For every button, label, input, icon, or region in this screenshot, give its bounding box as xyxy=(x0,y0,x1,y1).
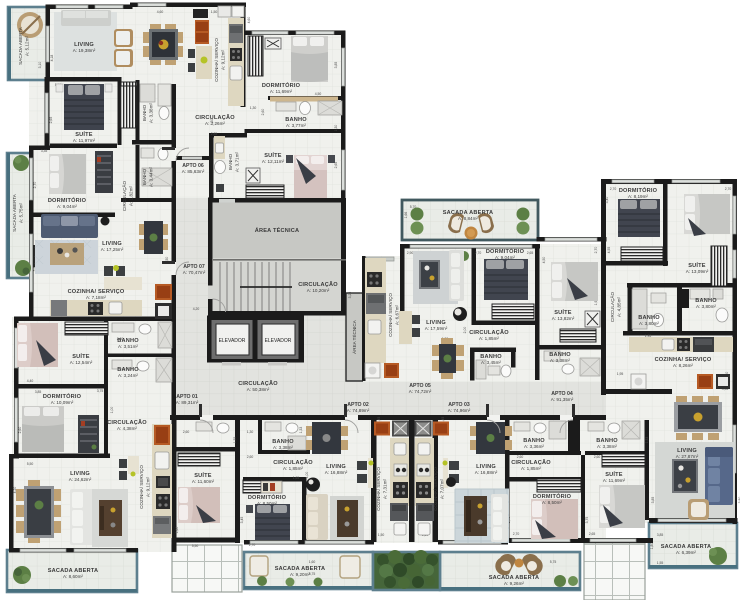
svg-text:SUÍTE: SUÍTE xyxy=(554,308,572,316)
svg-text:A: 8,26m²: A: 8,26m² xyxy=(673,363,693,368)
svg-text:A: 74,96m²: A: 74,96m² xyxy=(448,408,471,413)
svg-text:1,80: 1,80 xyxy=(650,543,654,550)
svg-text:COZINHA/ SERVIÇO: COZINHA/ SERVIÇO xyxy=(139,465,144,509)
svg-text:2,70: 2,70 xyxy=(513,532,520,536)
svg-text:A: 9,20m²: A: 9,20m² xyxy=(290,572,310,577)
svg-text:A: 11,69m²: A: 11,69m² xyxy=(270,89,293,94)
svg-text:2,65: 2,65 xyxy=(527,251,534,255)
svg-text:2,70: 2,70 xyxy=(33,182,37,189)
svg-text:A: 16,88m²: A: 16,88m² xyxy=(325,470,348,475)
svg-text:DORMITÓRIO: DORMITÓRIO xyxy=(43,392,82,400)
svg-text:1,65: 1,65 xyxy=(293,476,300,480)
svg-text:DORMITÓRIO: DORMITÓRIO xyxy=(533,492,572,500)
svg-text:A: 10,20m²: A: 10,20m² xyxy=(307,288,330,293)
svg-text:3,75: 3,75 xyxy=(97,389,104,393)
svg-text:4,40: 4,40 xyxy=(27,379,34,383)
svg-text:A: 16,88m²: A: 16,88m² xyxy=(475,470,498,475)
svg-text:COZINHA/ SERVIÇO: COZINHA/ SERVIÇO xyxy=(376,467,381,511)
svg-text:A: 24,62m²: A: 24,62m² xyxy=(69,477,92,482)
svg-text:3,35: 3,35 xyxy=(41,149,48,153)
svg-text:2,70: 2,70 xyxy=(725,187,732,191)
svg-text:SUÍTE: SUÍTE xyxy=(194,471,212,479)
svg-text:3,85: 3,85 xyxy=(334,62,338,69)
svg-text:2,70: 2,70 xyxy=(610,187,617,191)
svg-text:A: 19,38m²: A: 19,38m² xyxy=(73,48,96,53)
svg-text:1,30: 1,30 xyxy=(334,125,338,132)
svg-text:A: 1,85m²: A: 1,85m² xyxy=(479,336,499,341)
svg-text:3,85: 3,85 xyxy=(651,497,655,504)
svg-text:A: 74,89m²: A: 74,89m² xyxy=(347,408,370,413)
svg-text:2,60: 2,60 xyxy=(183,430,190,434)
svg-text:A: 11,97m²: A: 11,97m² xyxy=(73,138,96,143)
svg-text:1,30: 1,30 xyxy=(250,106,257,110)
svg-text:2,70: 2,70 xyxy=(594,247,598,254)
svg-text:A: 3,45m²: A: 3,45m² xyxy=(481,360,501,365)
svg-text:DORMITÓRIO: DORMITÓRIO xyxy=(486,247,525,255)
svg-text:2,00: 2,00 xyxy=(463,327,467,334)
svg-text:A: 3,38m²: A: 3,38m² xyxy=(550,358,570,363)
svg-text:BANHO: BANHO xyxy=(228,153,233,170)
svg-text:2,60: 2,60 xyxy=(594,455,601,459)
svg-text:1,30: 1,30 xyxy=(247,430,254,434)
svg-text:A: 6,39m²: A: 6,39m² xyxy=(676,550,696,555)
svg-text:A: 4,38m²: A: 4,38m² xyxy=(117,426,137,431)
svg-text:A: 9,12m²: A: 9,12m² xyxy=(146,477,151,497)
svg-text:1,60: 1,60 xyxy=(175,527,179,534)
svg-text:5,50: 5,50 xyxy=(27,462,34,466)
svg-text:A: 3,77m²: A: 3,77m² xyxy=(286,123,306,128)
svg-text:A: 1,85m²: A: 1,85m² xyxy=(283,466,303,471)
svg-text:A: 27,87m²: A: 27,87m² xyxy=(676,454,699,459)
svg-text:A: 3,38m²: A: 3,38m² xyxy=(597,444,617,449)
svg-text:A: 1,82m²: A: 1,82m² xyxy=(129,186,134,206)
svg-text:A: 11,60m²: A: 11,60m² xyxy=(192,479,215,484)
svg-text:SUÍTE: SUÍTE xyxy=(605,470,623,478)
svg-text:4,18: 4,18 xyxy=(50,55,54,62)
svg-text:2,60: 2,60 xyxy=(247,455,254,459)
svg-text:1,33: 1,33 xyxy=(645,437,649,444)
svg-text:A: 50,38m²: A: 50,38m² xyxy=(247,387,270,392)
svg-text:A: 17,59m²: A: 17,59m² xyxy=(425,326,448,331)
svg-text:A: 9,04m²: A: 9,04m² xyxy=(495,255,515,260)
svg-text:CIRCULAÇÃO: CIRCULAÇÃO xyxy=(121,181,127,212)
svg-text:5,50: 5,50 xyxy=(192,544,199,548)
svg-text:A: 9,12m²: A: 9,12m² xyxy=(221,50,226,70)
svg-text:CIRCULAÇÃO: CIRCULAÇÃO xyxy=(195,114,235,121)
svg-text:ELEVADOR: ELEVADOR xyxy=(265,338,292,344)
svg-text:A: 8,84m²: A: 8,84m² xyxy=(458,216,478,221)
svg-text:4,20: 4,20 xyxy=(193,307,200,311)
svg-text:CIRCULAÇÃO: CIRCULAÇÃO xyxy=(273,459,313,466)
svg-text:1,00: 1,00 xyxy=(110,407,114,414)
svg-text:3,85: 3,85 xyxy=(657,533,664,537)
svg-text:A: 85,63m²: A: 85,63m² xyxy=(182,169,205,174)
svg-text:1,33: 1,33 xyxy=(299,427,303,434)
svg-text:1,35: 1,35 xyxy=(233,437,237,444)
svg-text:A: 13,09m²: A: 13,09m² xyxy=(686,269,709,274)
svg-text:SUÍTE: SUÍTE xyxy=(75,130,93,138)
svg-text:1,50: 1,50 xyxy=(211,10,218,14)
svg-text:4,60: 4,60 xyxy=(157,10,164,14)
svg-text:A: 8,19m²: A: 8,19m² xyxy=(628,194,648,199)
svg-text:A: 3,38m²: A: 3,38m² xyxy=(273,445,293,450)
svg-text:A: 3,80m²: A: 3,80m² xyxy=(639,321,659,326)
svg-text:A: 1,85m²: A: 1,85m² xyxy=(521,466,541,471)
svg-text:BANHO: BANHO xyxy=(142,168,147,185)
svg-text:DORMITÓRIO: DORMITÓRIO xyxy=(248,493,287,501)
svg-text:CIRCULAÇÃO: CIRCULAÇÃO xyxy=(298,281,338,288)
svg-text:A: 9,26m²: A: 9,26m² xyxy=(504,581,524,586)
svg-text:4,50: 4,50 xyxy=(542,257,546,264)
svg-text:A: 8,60m²: A: 8,60m² xyxy=(63,574,83,579)
svg-text:A: 7,07m²: A: 7,07m² xyxy=(440,479,445,499)
svg-text:2,70: 2,70 xyxy=(249,543,256,547)
svg-text:1,95: 1,95 xyxy=(617,372,624,376)
svg-text:SUÍTE: SUÍTE xyxy=(264,151,282,159)
svg-text:A: 13,82m²: A: 13,82m² xyxy=(552,316,575,321)
svg-text:A: 70,47m²: A: 70,47m² xyxy=(183,270,206,275)
svg-text:1,55: 1,55 xyxy=(657,561,664,565)
svg-text:DORMITÓRIO: DORMITÓRIO xyxy=(262,81,301,89)
svg-text:A: 11,69m²: A: 11,69m² xyxy=(603,478,626,483)
svg-text:A: 3,24m²: A: 3,24m² xyxy=(118,373,138,378)
svg-text:3,25: 3,25 xyxy=(348,292,352,299)
svg-text:2,70: 2,70 xyxy=(475,251,482,255)
svg-text:4,60: 4,60 xyxy=(247,17,251,24)
svg-text:A: 89,31m²: A: 89,31m² xyxy=(176,400,199,405)
svg-text:A: 10,09m²: A: 10,09m² xyxy=(51,400,74,405)
svg-text:DORMITÓRIO: DORMITÓRIO xyxy=(48,196,87,204)
svg-text:CIRCULAÇÃO: CIRCULAÇÃO xyxy=(469,329,509,336)
svg-text:SACADA ABERTA: SACADA ABERTA xyxy=(12,193,17,232)
svg-text:2,60: 2,60 xyxy=(517,455,524,459)
svg-text:3,85: 3,85 xyxy=(35,390,42,394)
svg-text:2,65: 2,65 xyxy=(589,532,596,536)
svg-text:2,85: 2,85 xyxy=(211,132,218,136)
svg-text:3,45: 3,45 xyxy=(240,517,244,524)
svg-text:A: 5,75m²: A: 5,75m² xyxy=(19,203,24,223)
svg-text:A: 91,35m²: A: 91,35m² xyxy=(551,397,574,402)
svg-text:2,90: 2,90 xyxy=(407,251,414,255)
svg-text:CIRCULAÇÃO: CIRCULAÇÃO xyxy=(609,292,615,323)
svg-text:A: 5,12m²: A: 5,12m² xyxy=(25,36,30,56)
svg-text:CIRCULAÇÃO: CIRCULAÇÃO xyxy=(107,419,147,426)
svg-text:A: 8,50m²: A: 8,50m² xyxy=(257,501,277,506)
svg-text:1,50: 1,50 xyxy=(378,533,385,537)
svg-text:A: 8,50m²: A: 8,50m² xyxy=(542,500,562,505)
svg-text:3,40: 3,40 xyxy=(605,197,609,204)
svg-text:1,60: 1,60 xyxy=(309,560,316,564)
svg-text:A: 7,18m²: A: 7,18m² xyxy=(86,295,106,300)
svg-text:1,00: 1,00 xyxy=(305,472,309,479)
svg-text:SUÍTE: SUÍTE xyxy=(72,352,90,360)
svg-text:ÁREA TÉCNICA: ÁREA TÉCNICA xyxy=(255,226,299,234)
svg-text:A: 7,31m²: A: 7,31m² xyxy=(383,479,388,499)
svg-text:A: 4,85m²: A: 4,85m² xyxy=(617,297,622,317)
svg-text:A: 3,51m²: A: 3,51m² xyxy=(118,344,138,349)
svg-text:A: 6,67m²: A: 6,67m² xyxy=(395,305,400,325)
svg-text:DORMITÓRIO: DORMITÓRIO xyxy=(619,186,658,194)
svg-text:A: 12,54m²: A: 12,54m² xyxy=(70,360,93,365)
svg-text:A: 3,38m²: A: 3,38m² xyxy=(149,103,154,123)
svg-text:A: 17,25m²: A: 17,25m² xyxy=(101,247,124,252)
svg-text:ÁREA TÉCNICA: ÁREA TÉCNICA xyxy=(351,319,357,354)
svg-text:CIRCULAÇÃO: CIRCULAÇÃO xyxy=(511,459,551,466)
svg-text:2,65: 2,65 xyxy=(49,117,53,124)
svg-text:1,66: 1,66 xyxy=(404,212,408,219)
svg-text:COZINHA/ SERVIÇO: COZINHA/ SERVIÇO xyxy=(388,293,393,337)
svg-text:3,10: 3,10 xyxy=(38,62,42,69)
svg-text:A: 74,72m²: A: 74,72m² xyxy=(409,389,432,394)
svg-text:A: 3,71m²: A: 3,71m² xyxy=(235,152,240,172)
svg-text:A: 3,80m²: A: 3,80m² xyxy=(696,304,716,309)
svg-text:COZINHA/ SERVIÇO: COZINHA/ SERVIÇO xyxy=(433,467,438,511)
svg-text:2,60: 2,60 xyxy=(18,427,22,434)
svg-text:A: 12,11m²: A: 12,11m² xyxy=(262,159,285,164)
svg-text:CIRCULAÇÃO: CIRCULAÇÃO xyxy=(238,380,278,387)
svg-text:4,55: 4,55 xyxy=(607,247,611,254)
svg-text:4,50: 4,50 xyxy=(315,92,322,96)
svg-text:A: 9,04m²: A: 9,04m² xyxy=(57,204,77,209)
svg-text:SUÍTE: SUÍTE xyxy=(688,261,706,269)
svg-text:SACADA ABERTA: SACADA ABERTA xyxy=(18,26,23,65)
svg-text:2,60: 2,60 xyxy=(261,109,265,116)
svg-text:A: 3,44m²: A: 3,44m² xyxy=(149,167,154,187)
svg-text:COZINHA/ SERVIÇO: COZINHA/ SERVIÇO xyxy=(214,38,219,82)
svg-text:BANHO: BANHO xyxy=(142,104,147,121)
svg-text:5,75: 5,75 xyxy=(550,560,557,564)
svg-text:A: 7,26m²: A: 7,26m² xyxy=(205,121,225,126)
svg-text:A: 3,36m²: A: 3,36m² xyxy=(524,444,544,449)
svg-text:ELEVADOR: ELEVADOR xyxy=(219,338,246,344)
svg-text:3,75: 3,75 xyxy=(585,517,589,524)
